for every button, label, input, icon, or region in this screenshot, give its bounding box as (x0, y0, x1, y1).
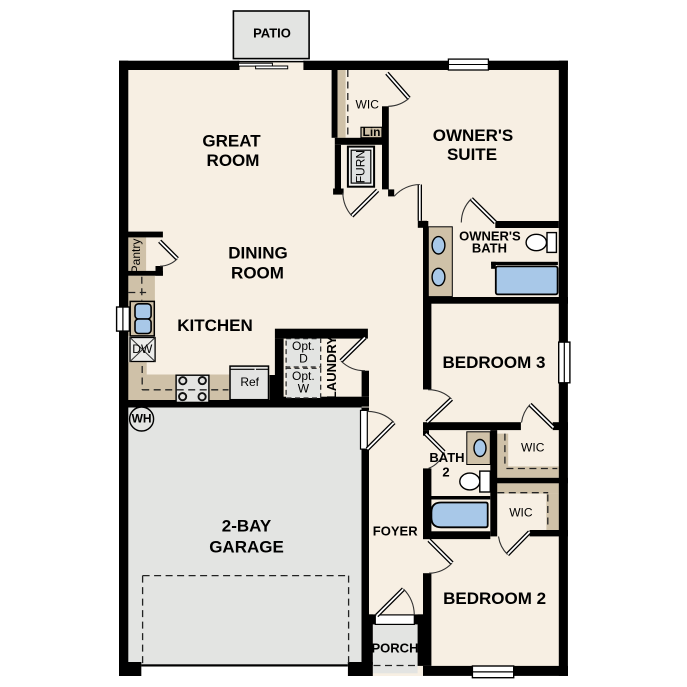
svg-text:Lin: Lin (363, 125, 381, 139)
svg-text:D: D (299, 352, 308, 366)
svg-text:DINING: DINING (228, 244, 288, 263)
svg-text:ROOM: ROOM (231, 264, 284, 283)
svg-text:GREAT: GREAT (202, 132, 261, 151)
svg-text:GARAGE: GARAGE (209, 538, 284, 557)
svg-text:BATH: BATH (429, 450, 464, 465)
svg-text:ROOM: ROOM (207, 151, 260, 170)
svg-text:2-BAY: 2-BAY (222, 517, 272, 536)
svg-text:FOYER: FOYER (373, 524, 418, 539)
svg-text:BEDROOM 2: BEDROOM 2 (443, 589, 546, 608)
svg-text:Pantry: Pantry (129, 239, 143, 274)
svg-text:WIC: WIC (509, 506, 533, 520)
svg-text:BEDROOM 3: BEDROOM 3 (443, 353, 546, 372)
svg-text:W: W (298, 382, 310, 396)
svg-text:PATIO: PATIO (253, 26, 291, 41)
svg-text:PORCH: PORCH (372, 641, 419, 656)
svg-text:SUITE: SUITE (447, 145, 497, 164)
svg-text:FURN: FURN (353, 150, 367, 183)
svg-text:BATH: BATH (472, 241, 507, 256)
svg-text:KITCHEN: KITCHEN (177, 316, 253, 335)
svg-text:WH: WH (132, 411, 152, 425)
svg-text:Ref: Ref (240, 375, 259, 389)
svg-text:2: 2 (442, 465, 449, 480)
svg-text:LAUNDRY: LAUNDRY (324, 336, 339, 399)
svg-text:WIC: WIC (356, 97, 380, 111)
svg-text:DW: DW (132, 342, 153, 356)
svg-text:WIC: WIC (521, 441, 545, 455)
svg-text:OWNER'S: OWNER'S (433, 126, 514, 145)
